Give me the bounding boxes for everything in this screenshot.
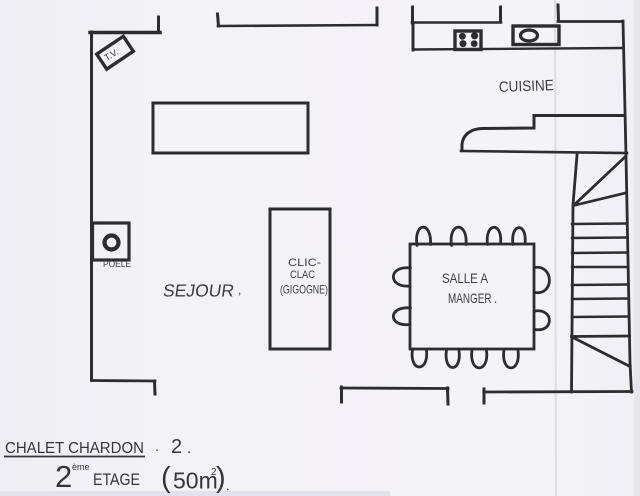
svg-text:SEJOUR: SEJOUR: [162, 281, 236, 301]
svg-text:CHALET CHARDON: CHALET CHARDON: [5, 440, 144, 457]
svg-text:CLIC-: CLIC-: [288, 257, 321, 269]
svg-text:MANGER .: MANGER .: [448, 290, 497, 306]
svg-text:2: 2: [171, 436, 182, 458]
svg-text:(GIGOGNE): (GIGOGNE): [280, 283, 328, 297]
svg-text:CUISINE: CUISINE: [499, 77, 555, 96]
svg-text:POELE: POELE: [103, 259, 131, 269]
svg-text:ETAGE: ETAGE: [93, 470, 140, 489]
svg-text:.: .: [226, 478, 230, 493]
svg-text:,: ,: [238, 283, 241, 297]
svg-text:.: .: [187, 440, 191, 457]
svg-text:ème: ème: [72, 462, 90, 472]
svg-text:CLAC: CLAC: [290, 269, 315, 281]
svg-text:.: .: [155, 438, 159, 454]
svg-text:(: (: [161, 462, 171, 494]
svg-text:): ): [216, 462, 226, 494]
svg-text:SALLE A: SALLE A: [442, 270, 489, 286]
svg-text:2: 2: [55, 459, 72, 494]
